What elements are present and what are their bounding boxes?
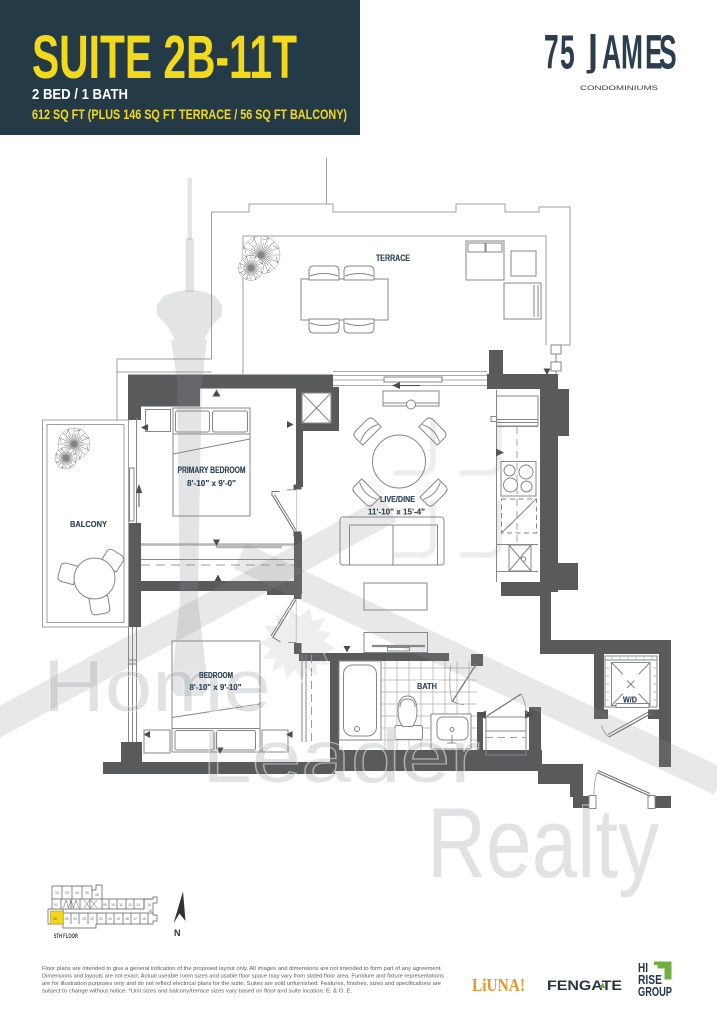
svg-text:8'-10" x 9'-10": 8'-10" x 9'-10" [190,682,242,692]
svg-text:5TH FLOOR: 5TH FLOOR [54,933,78,940]
svg-text:BALCONY: BALCONY [70,519,107,529]
svg-text:05: 05 [85,891,89,895]
svg-text:23: 23 [82,917,86,921]
svg-text:7: 7 [544,26,559,79]
svg-text:09: 09 [103,903,107,907]
svg-text:22: 22 [90,917,94,921]
svg-text:8'-10" x 9'-0": 8'-10" x 9'-0" [187,478,236,488]
svg-text:A: A [602,26,621,79]
svg-text:19: 19 [116,917,120,921]
svg-text:11: 11 [119,903,123,907]
svg-text:BEDROOM: BEDROOM [199,670,233,680]
svg-text:W/D: W/D [623,695,637,705]
svg-text:02: 02 [55,891,59,895]
svg-text:2 BED / 1 BATH: 2 BED / 1 BATH [32,87,128,103]
svg-text:17: 17 [133,917,137,921]
svg-text:Leader: Leader [202,717,480,798]
svg-text:21: 21 [99,917,103,921]
svg-text:S: S [659,26,677,79]
svg-text:03: 03 [65,891,69,895]
svg-text:N: N [174,928,181,938]
svg-text:subject to change without noti: subject to change without notice. *Unit … [42,989,352,995]
svg-text:Realty: Realty [427,787,659,898]
svg-text:01: 01 [54,903,58,907]
svg-text:M: M [621,26,643,79]
svg-text:13: 13 [136,903,140,907]
svg-text:14: 14 [147,903,151,907]
svg-text:LiUNA!: LiUNA! [472,975,525,995]
svg-text:24: 24 [73,917,77,921]
svg-text:BATH: BATH [417,681,437,691]
svg-text:06: 06 [95,893,99,897]
svg-text:are for illustration purposes: are for illustration purposes only and d… [42,981,441,987]
svg-text:12: 12 [128,903,132,907]
svg-text:25: 25 [65,917,69,921]
svg-text:TERRACE: TERRACE [376,253,410,264]
svg-text:26: 26 [53,917,57,921]
svg-text:5: 5 [560,26,575,79]
svg-text:GROUP: GROUP [638,985,672,999]
svg-text:16: 16 [142,917,146,921]
svg-text:PRIMARY BEDROOM: PRIMARY BEDROOM [178,465,246,475]
svg-text:Floor plans are intended to gi: Floor plans are intended to give a gener… [42,966,442,972]
svg-text:18: 18 [125,917,129,921]
svg-text:15: 15 [148,909,152,913]
svg-text:LIVE/DINE: LIVE/DINE [380,494,415,504]
svg-text:Dimensions and layouts are not: Dimensions and layouts are not exact. Ac… [42,974,444,980]
svg-text:11'-10" x 15'-4": 11'-10" x 15'-4" [368,507,425,517]
svg-text:20: 20 [108,917,112,921]
svg-text:CONDOMINIUMS: CONDOMINIUMS [580,86,658,92]
svg-text:10: 10 [111,903,115,907]
svg-text:SUITE 2B-11T: SUITE 2B-11T [32,23,297,91]
svg-text:04: 04 [75,891,79,895]
svg-text:FENGATE: FENGATE [547,977,622,993]
svg-text:612 SQ FT (PLUS 146 SQ FT TERR: 612 SQ FT (PLUS 146 SQ FT TERRACE / 56 S… [32,106,347,122]
